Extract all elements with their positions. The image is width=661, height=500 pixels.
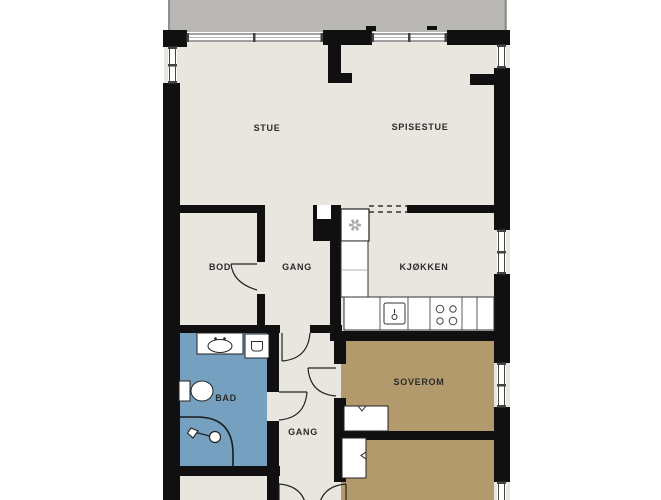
room-label-stue: STUE xyxy=(254,123,281,133)
kitchen-sink xyxy=(384,303,405,324)
room-label-bad: BAD xyxy=(215,393,237,403)
window-top-left xyxy=(187,33,324,42)
balcony xyxy=(168,0,507,32)
balcony-door-threshold xyxy=(427,26,437,30)
window-top-right xyxy=(372,33,448,42)
wardrobe-soverom xyxy=(344,406,388,431)
room-label-bod: BOD xyxy=(209,262,231,272)
chimney-notch xyxy=(317,205,331,219)
room-label-soverom: SOVEROM xyxy=(394,377,445,387)
wardrobe-second-bedroom xyxy=(342,438,366,478)
floor-plan-drawing xyxy=(0,0,661,500)
bathroom-sink xyxy=(197,333,243,354)
window-second-bedroom xyxy=(497,482,506,500)
window-bedroom xyxy=(497,363,506,408)
room-label-gang-upper: GANG xyxy=(282,262,312,272)
ventilation-shaft xyxy=(341,209,369,241)
room-label-gang-lower: GANG xyxy=(288,427,318,437)
window-right-wall-top xyxy=(497,45,506,69)
room-label-spisestue: SPISESTUE xyxy=(392,122,449,132)
toilet xyxy=(179,381,213,401)
washing-machine xyxy=(245,334,269,358)
room-label-kjokken: KJØKKEN xyxy=(400,262,449,272)
kitchen-opening-dashed xyxy=(369,205,407,213)
floor-plan: STUE SPISESTUE BOD GANG KJØKKEN BAD SOVE… xyxy=(0,0,661,500)
window-kitchen xyxy=(497,230,506,275)
window-left-wall xyxy=(168,47,177,84)
